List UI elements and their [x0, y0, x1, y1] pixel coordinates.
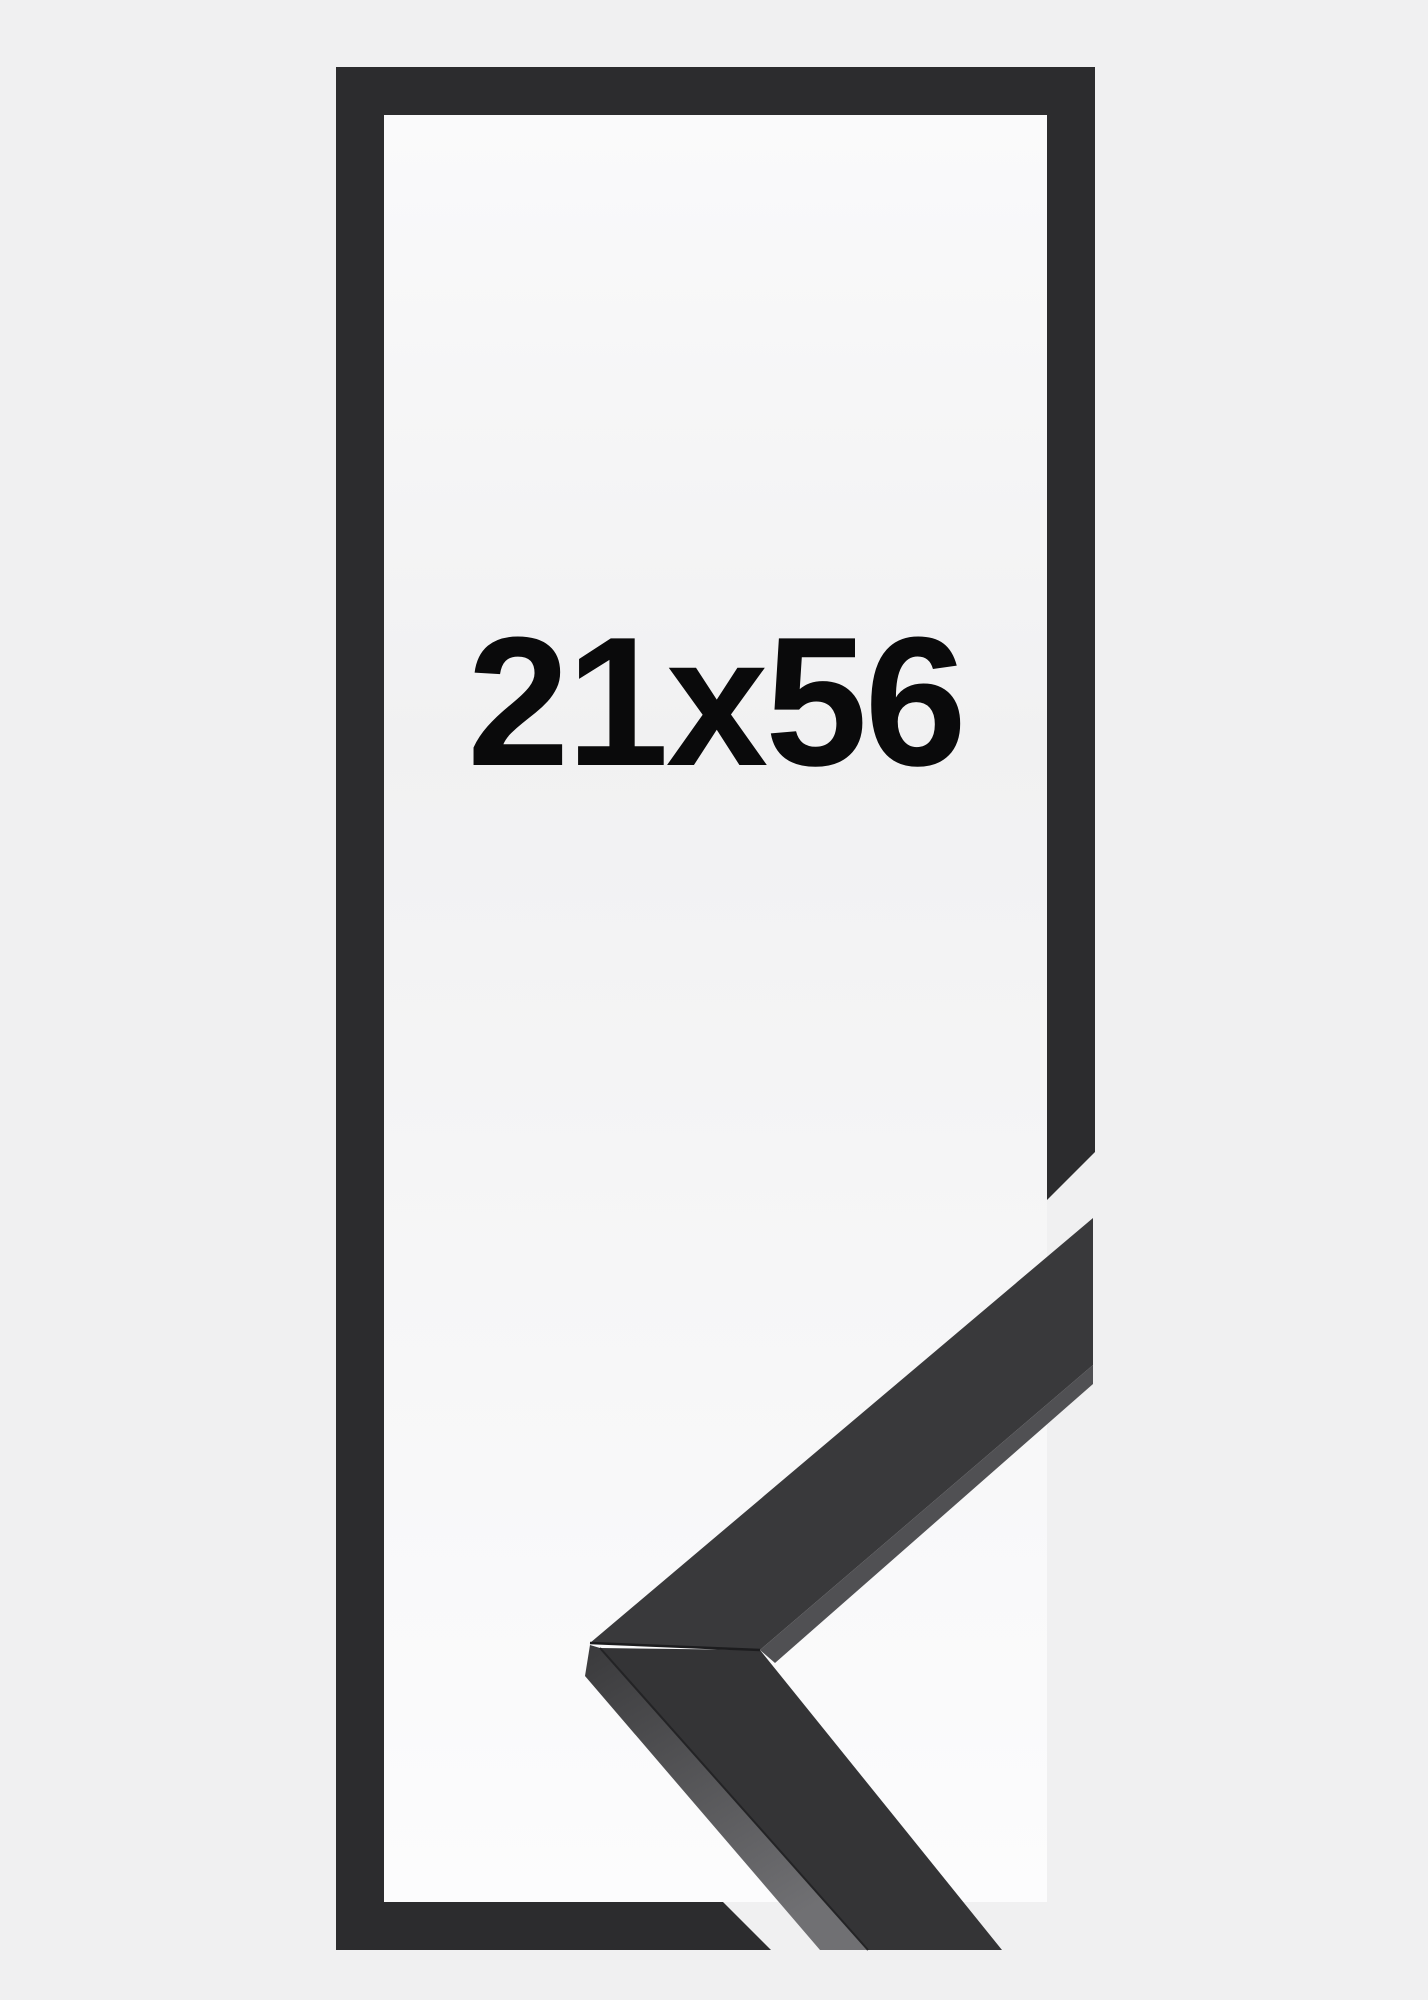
product-photo: 21x56	[0, 0, 1428, 2000]
size-label: 21x56	[384, 609, 1047, 793]
frame-illustration	[0, 0, 1428, 2000]
